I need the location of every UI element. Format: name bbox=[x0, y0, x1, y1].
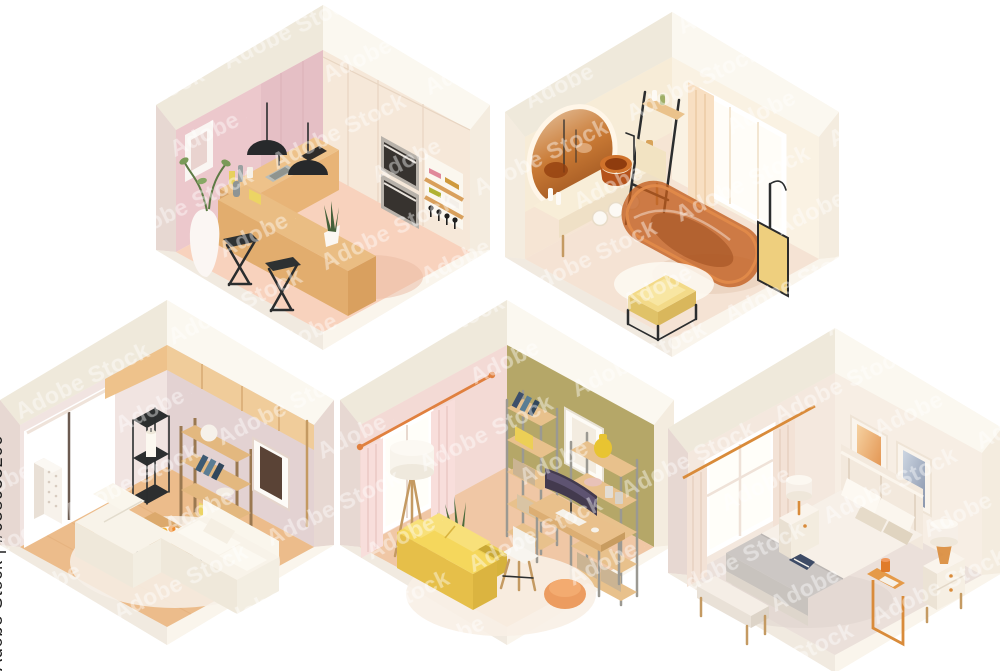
watermark-side-label: Adobe Stock | #658955266 bbox=[0, 435, 7, 671]
stock-preview-image: Adobe Stock Adobe Stock bbox=[0, 0, 1000, 671]
watermark-overlay bbox=[0, 0, 1000, 671]
isometric-rooms-illustration: Adobe Stock Adobe Stock bbox=[0, 0, 1000, 671]
